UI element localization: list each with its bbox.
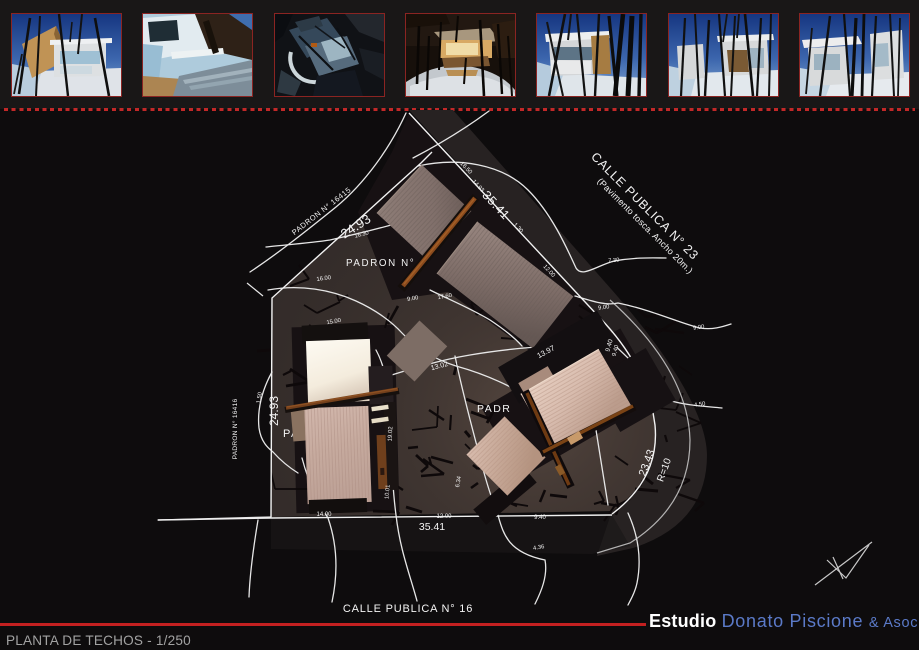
- svg-text:1.50: 1.50: [256, 392, 264, 404]
- svg-text:7.30: 7.30: [608, 258, 620, 265]
- svg-text:14.00: 14.00: [316, 512, 332, 518]
- svg-text:9.40: 9.40: [534, 515, 546, 521]
- svg-text:10.01: 10.01: [384, 484, 391, 499]
- svg-text:12.00: 12.00: [436, 514, 452, 520]
- svg-text:9.00: 9.00: [693, 324, 705, 332]
- svg-text:CALLE PUBLICA N° 16: CALLE PUBLICA N° 16: [343, 603, 473, 615]
- svg-text:35.41: 35.41: [419, 521, 445, 533]
- svg-text:4.50: 4.50: [694, 401, 706, 409]
- svg-text:CALLE PUBLICA N° 23: CALLE PUBLICA N° 23: [588, 150, 701, 263]
- svg-text:24.93: 24.93: [267, 396, 281, 426]
- svg-text:19.02: 19.02: [388, 426, 395, 442]
- svg-text:PADR: PADR: [477, 403, 511, 415]
- svg-text:PADRON N° 16416: PADRON N° 16416: [231, 399, 239, 460]
